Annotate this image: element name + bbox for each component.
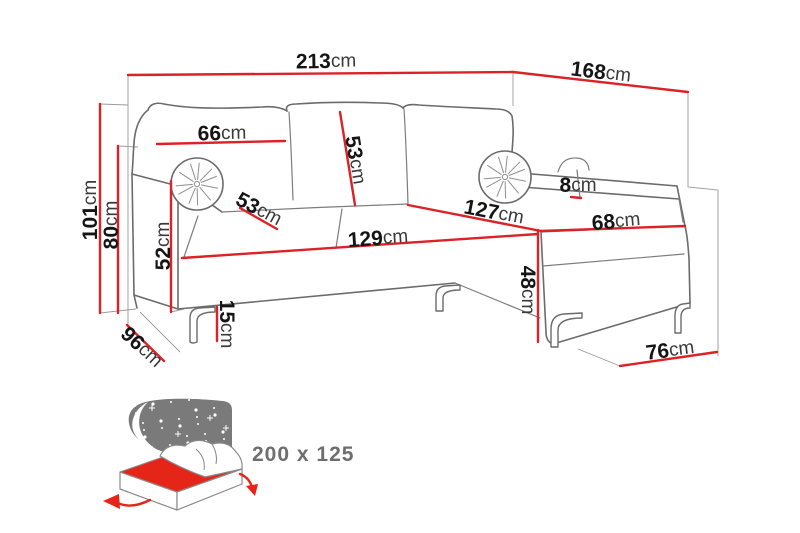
- corner-sofa-dimension-drawing: 213cm 168cm 101cm 80cm 66cm 53cm 53cm 52…: [0, 0, 800, 533]
- chaise-right-leg: [675, 303, 690, 333]
- middle-leg: [436, 285, 460, 311]
- dim-label-seat-depth: 53cm: [232, 187, 286, 230]
- sofa-bed-icon: [103, 397, 258, 510]
- dim-label-backrest-height: 80cm: [100, 201, 123, 250]
- dimension-diagram-page: 213cm 168cm 101cm 80cm 66cm 53cm 53cm 52…: [0, 0, 800, 533]
- sofa-legs: [190, 285, 690, 347]
- dim-label-back-cushion-width: 66cm: [197, 121, 246, 145]
- dim-label-back-panel-height: 8cm: [559, 174, 596, 197]
- dim-label-armrest-height: 52cm: [152, 222, 175, 271]
- sleeping-area-size: 200 x 125: [252, 443, 354, 466]
- chaise-left-leg: [551, 313, 582, 347]
- front-left-leg: [190, 307, 215, 343]
- dim-label-leg-height: 15cm: [216, 300, 239, 349]
- dim-label-seat-width: 129cm: [347, 224, 409, 251]
- dim-label-chaise-height: 48cm: [517, 266, 540, 315]
- dim-label-back-cushion-height: 53cm: [341, 134, 371, 186]
- dim-label-width-total: 213cm: [296, 49, 357, 73]
- dim-label-chaise-end-width: 76cm: [644, 336, 695, 365]
- round-pillow-left: [171, 158, 223, 210]
- dim-label-depth-total: 168cm: [570, 57, 633, 87]
- unfold-arrow-left: [116, 500, 150, 506]
- dim-label-chaise-width: 68cm: [591, 207, 642, 234]
- dimension-line-back-panel-height: [571, 197, 581, 198]
- dim-label-height-total: 101cm: [79, 180, 102, 240]
- dim-label-side-depth: 96cm: [116, 322, 167, 372]
- round-pillow-right: [479, 151, 531, 203]
